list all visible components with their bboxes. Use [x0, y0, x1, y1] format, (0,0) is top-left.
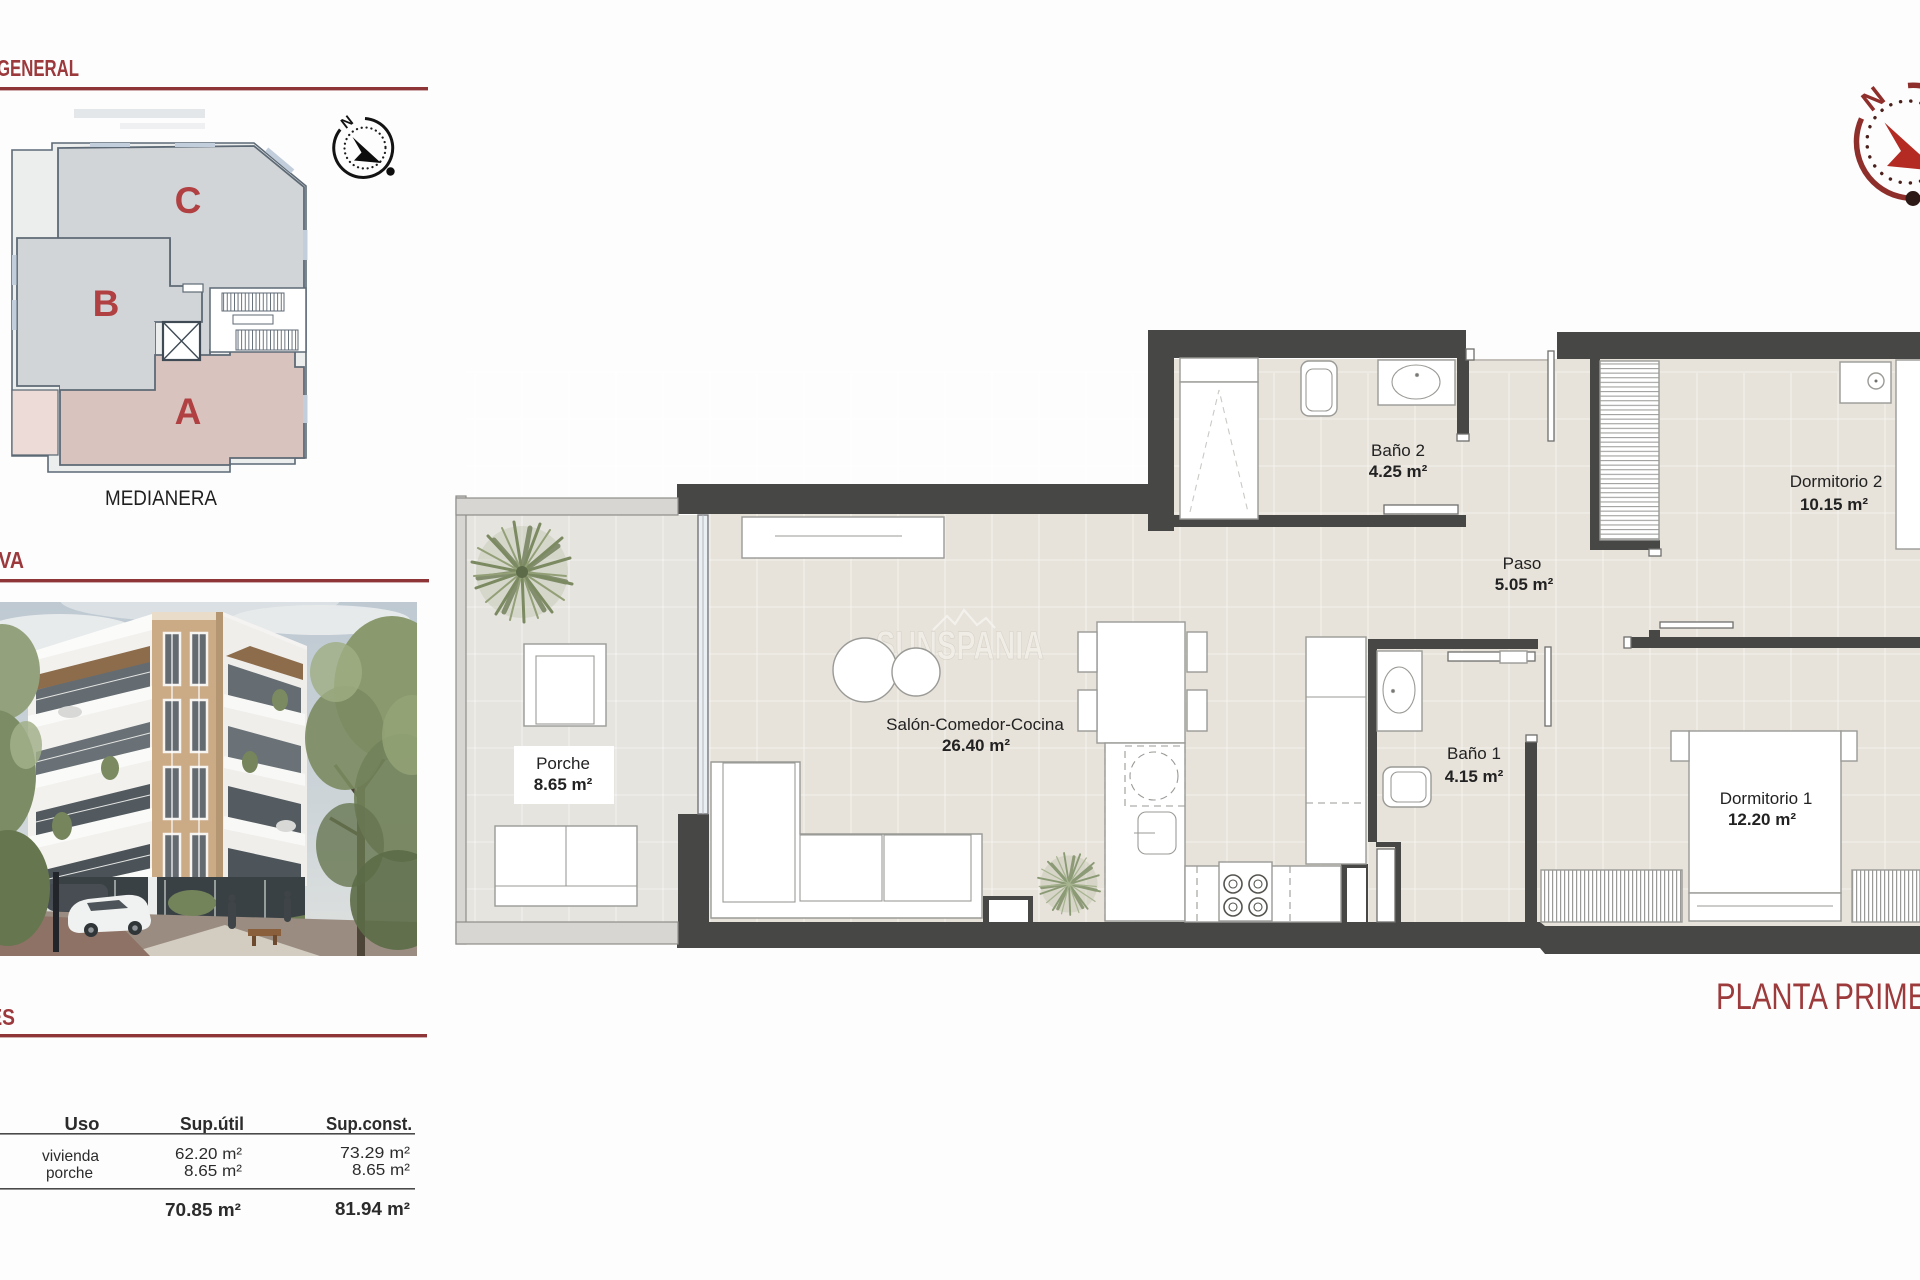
svg-text:ORIENTATIVA: ORIENTATIVA: [0, 547, 24, 573]
svg-text:B: B: [93, 283, 120, 324]
svg-text:vivienda: vivienda: [42, 1148, 99, 1165]
svg-text:8.65 m²: 8.65 m²: [534, 775, 593, 794]
svg-text:8.65 m²: 8.65 m²: [184, 1163, 243, 1180]
svg-text:SUPERFICIES: SUPERFICIES: [0, 1004, 15, 1030]
svg-text:10.15 m²: 10.15 m²: [1800, 495, 1868, 514]
svg-text:GENERAL: GENERAL: [0, 55, 79, 81]
svg-text:Sup.útil: Sup.útil: [180, 1114, 244, 1134]
svg-text:C: C: [175, 180, 202, 221]
svg-text:porche: porche: [46, 1165, 93, 1182]
svg-text:12.20 m²: 12.20 m²: [1728, 810, 1796, 829]
svg-text:MEDIANERA: MEDIANERA: [105, 487, 217, 510]
svg-text:Baño 2: Baño 2: [1371, 441, 1425, 460]
svg-text:Dormitorio 2: Dormitorio 2: [1790, 472, 1883, 491]
svg-text:26.40 m²: 26.40 m²: [942, 736, 1010, 755]
svg-text:4.15 m²: 4.15 m²: [1445, 767, 1504, 786]
svg-text:73.29 m²: 73.29 m²: [340, 1145, 411, 1162]
svg-text:Paso: Paso: [1503, 554, 1542, 573]
svg-text:A: A: [175, 391, 202, 432]
svg-text:Sup.const.: Sup.const.: [326, 1114, 412, 1134]
svg-text:PLANTA PRIMERA: PLANTA PRIMERA: [1716, 976, 1920, 1017]
svg-text:Dormitorio 1: Dormitorio 1: [1720, 789, 1813, 808]
svg-text:81.94 m²: 81.94 m²: [335, 1199, 410, 1219]
svg-text:Uso: Uso: [65, 1114, 100, 1134]
svg-text:70.85 m²: 70.85 m²: [165, 1200, 241, 1220]
svg-text:4.25 m²: 4.25 m²: [1369, 462, 1428, 481]
svg-text:Salón-Comedor-Cocina: Salón-Comedor-Cocina: [886, 715, 1064, 734]
svg-text:Porche: Porche: [536, 754, 590, 773]
svg-text:8.65 m²: 8.65 m²: [352, 1162, 411, 1179]
svg-text:5.05 m²: 5.05 m²: [1495, 575, 1554, 594]
svg-text:62.20 m²: 62.20 m²: [175, 1146, 243, 1163]
svg-text:Baño 1: Baño 1: [1447, 744, 1501, 763]
